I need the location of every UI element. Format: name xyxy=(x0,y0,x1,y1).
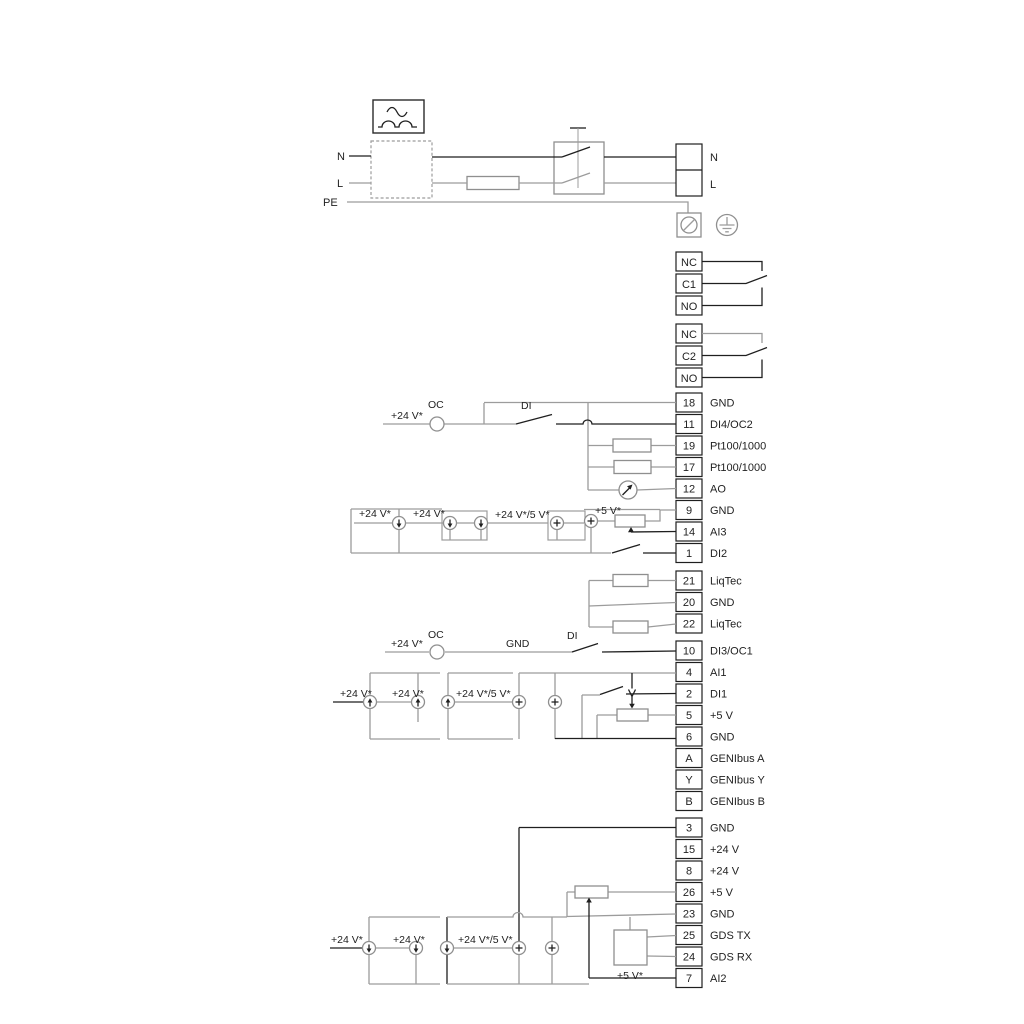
gds-module xyxy=(614,930,647,965)
terminal-23: 23 xyxy=(683,909,695,921)
relay1-contact xyxy=(702,262,767,306)
filter-box xyxy=(371,141,432,198)
terminal-15: 15 xyxy=(683,844,695,856)
wires xyxy=(589,581,676,628)
terminal-11: 11 xyxy=(683,419,694,431)
terminal-19-label: Pt100/1000 xyxy=(710,441,766,453)
label-oc: OC xyxy=(428,629,444,641)
earth-symbol xyxy=(717,215,738,236)
label-24v: +24 V* xyxy=(331,934,363,946)
label-24v: +24 V* xyxy=(391,410,423,422)
label-24v: +24 V* xyxy=(391,638,423,650)
meter-symbol xyxy=(619,481,637,499)
current-source-up xyxy=(442,696,455,709)
io1-circuit-bottom: +24 V* +24 V* +24 V*/5 V* +5 V* xyxy=(351,505,676,553)
wire-pe xyxy=(347,202,688,213)
terminal-12-label: AO xyxy=(710,484,726,496)
label-24v-5v: +24 V*/5 V* xyxy=(458,934,513,946)
terminal-10: 10 xyxy=(683,646,695,658)
terminal-19: 19 xyxy=(683,441,695,453)
terminal-y: Y xyxy=(685,775,693,787)
resistor-pt100-17 xyxy=(614,461,651,474)
io2-circuit-bottom: +24 V* +24 V* +24 V*/5 V* xyxy=(333,673,676,739)
di2-switch xyxy=(612,545,676,554)
current-source-down xyxy=(363,942,376,955)
voltage-source-plus xyxy=(546,942,559,955)
terminal-nc1: NC xyxy=(681,257,697,269)
label-gnd: GND xyxy=(506,638,530,650)
power-switch xyxy=(554,128,604,194)
label-5v: +5 V* xyxy=(595,505,621,517)
voltage-source-plus xyxy=(513,696,526,709)
terminal-18: 18 xyxy=(683,398,695,410)
terminal-no2: NO xyxy=(681,373,698,385)
terminal-1-label: DI2 xyxy=(710,548,727,560)
terminal-22: 22 xyxy=(683,619,695,631)
label-di: DI xyxy=(521,400,532,412)
terminal-24-label: GDS RX xyxy=(710,952,753,964)
terminal-b: B xyxy=(685,796,692,808)
terminal-17: 17 xyxy=(683,462,695,474)
terminal-18-label: GND xyxy=(710,398,735,410)
label-24v: +24 V* xyxy=(340,688,372,700)
terminal-6: 6 xyxy=(686,732,692,744)
di3-switch xyxy=(572,644,676,653)
terminal-14: 14 xyxy=(683,527,695,539)
rectifier-symbol xyxy=(373,100,424,133)
io1-circuit-top: +24 V* OC DI xyxy=(383,399,676,499)
terminal-nc2: NC xyxy=(681,329,697,341)
terminal-10-label: DI3/OC1 xyxy=(710,646,753,658)
terminal-23-label: GND xyxy=(710,909,735,921)
terminal-a-label: GENIbus A xyxy=(710,753,765,765)
voltage-source-plus xyxy=(513,942,526,955)
label-n-out: N xyxy=(710,152,718,164)
relay2-contact xyxy=(702,348,767,378)
open-collector-symbol xyxy=(430,417,444,431)
terminal-20-label: GND xyxy=(710,597,735,609)
terminal-block-nl: N L xyxy=(676,144,718,196)
label-24v: +24 V* xyxy=(392,688,424,700)
power-section: N L PE N L xyxy=(323,100,738,237)
terminal-9-label: GND xyxy=(710,505,735,517)
terminal-21-label: LiqTec xyxy=(710,576,742,588)
terminal-c1: C1 xyxy=(682,279,696,291)
label-n-in: N xyxy=(337,151,345,163)
terminal-1: 1 xyxy=(686,548,692,560)
terminal-9: 9 xyxy=(686,505,692,517)
label-l-in: L xyxy=(337,178,343,190)
label-24v: +24 V* xyxy=(413,508,445,520)
di-switch-wire xyxy=(516,415,676,425)
current-source-down xyxy=(475,517,488,530)
terminal-14-label: AI3 xyxy=(710,527,727,539)
wire-n xyxy=(349,156,676,157)
relay2-block: NC C2 NO xyxy=(676,324,767,387)
voltage-source-plus xyxy=(549,696,562,709)
terminal-5: 5 xyxy=(686,710,692,722)
terminal-17-label: Pt100/1000 xyxy=(710,462,766,474)
terminal-7-label: AI2 xyxy=(710,973,727,985)
terminal-2-label: DI1 xyxy=(710,689,727,701)
label-l-out: L xyxy=(710,179,716,191)
terminal-8: 8 xyxy=(686,866,692,878)
io2-block: 10 DI3/OC1 4 AI1 2 DI1 5 +5 V 6 GND A GE… xyxy=(676,641,765,811)
label-di: DI xyxy=(567,630,578,642)
io3-block: 3 GND 15 +24 V 8 +24 V 26 +5 V 23 GND 25… xyxy=(676,818,753,988)
label-24v: +24 V* xyxy=(393,934,425,946)
terminal-4-label: AI1 xyxy=(710,667,727,679)
wiper-wire xyxy=(629,673,636,704)
terminal-7: 7 xyxy=(686,973,692,985)
terminal-21: 21 xyxy=(683,576,695,588)
terminal-2: 2 xyxy=(686,689,692,701)
terminal-25-label: GDS TX xyxy=(710,930,751,942)
terminal-b-label: GENIbus B xyxy=(710,796,765,808)
current-source-down xyxy=(441,942,454,955)
label-pe: PE xyxy=(323,197,338,209)
label-oc: OC xyxy=(428,399,444,411)
terminal-a: A xyxy=(685,753,693,765)
terminal-no1: NO xyxy=(681,301,698,313)
terminal-y-label: GENIbus Y xyxy=(710,775,765,787)
io3-circuit: +24 V* +24 V* +24 V*/5 V* +5 V* xyxy=(330,828,676,985)
wiper-wire xyxy=(631,532,676,533)
io1-block: 18 GND 11 DI4/OC2 19 Pt100/1000 17 Pt100… xyxy=(676,393,766,563)
potentiometer xyxy=(617,709,648,721)
terminal-4: 4 xyxy=(686,667,692,679)
current-source-down xyxy=(393,517,406,530)
screw-terminal xyxy=(677,213,701,237)
label-24v-5v: +24 V*/5 V* xyxy=(495,509,550,521)
relay1-block: NC C1 NO xyxy=(676,252,767,315)
pot-wiper-arrow xyxy=(629,704,635,709)
terminal-12: 12 xyxy=(683,484,695,496)
relay2-nc-wire xyxy=(702,334,762,344)
fuse xyxy=(467,177,519,190)
terminal-24: 24 xyxy=(683,952,695,964)
label-5v: +5 V* xyxy=(617,970,643,982)
voltage-source-plus xyxy=(551,517,564,530)
di1-switch xyxy=(600,687,676,695)
current-source-down xyxy=(444,517,457,530)
liqtec-block: 21 LiqTec 20 GND 22 LiqTec xyxy=(589,571,742,633)
terminal-c2: C2 xyxy=(682,351,696,363)
terminal-5-label: +5 V xyxy=(710,710,734,722)
open-collector-symbol xyxy=(430,645,444,659)
terminal-25: 25 xyxy=(683,930,695,942)
terminal-3-label: GND xyxy=(710,823,735,835)
terminal-8-label: +24 V xyxy=(710,866,740,878)
liqtec-sensor-resistor xyxy=(613,621,648,633)
potentiometer xyxy=(575,886,608,898)
terminal-11-label: DI4/OC2 xyxy=(710,419,753,431)
terminal-3: 3 xyxy=(686,823,692,835)
liqtec-sensor-resistor xyxy=(613,575,648,587)
terminal-15-label: +24 V xyxy=(710,844,740,856)
terminal-26: 26 xyxy=(683,887,695,899)
wiring-diagram: N L PE N L NC C1 NO NC xyxy=(0,0,1024,1024)
terminal-20: 20 xyxy=(683,597,695,609)
terminal-6-label: GND xyxy=(710,732,735,744)
terminal-22-label: LiqTec xyxy=(710,619,742,631)
label-24v-5v: +24 V*/5 V* xyxy=(456,688,511,700)
resistor-pt100-19 xyxy=(613,439,651,452)
terminal-26-label: +5 V xyxy=(710,887,734,899)
label-24v: +24 V* xyxy=(359,508,391,520)
